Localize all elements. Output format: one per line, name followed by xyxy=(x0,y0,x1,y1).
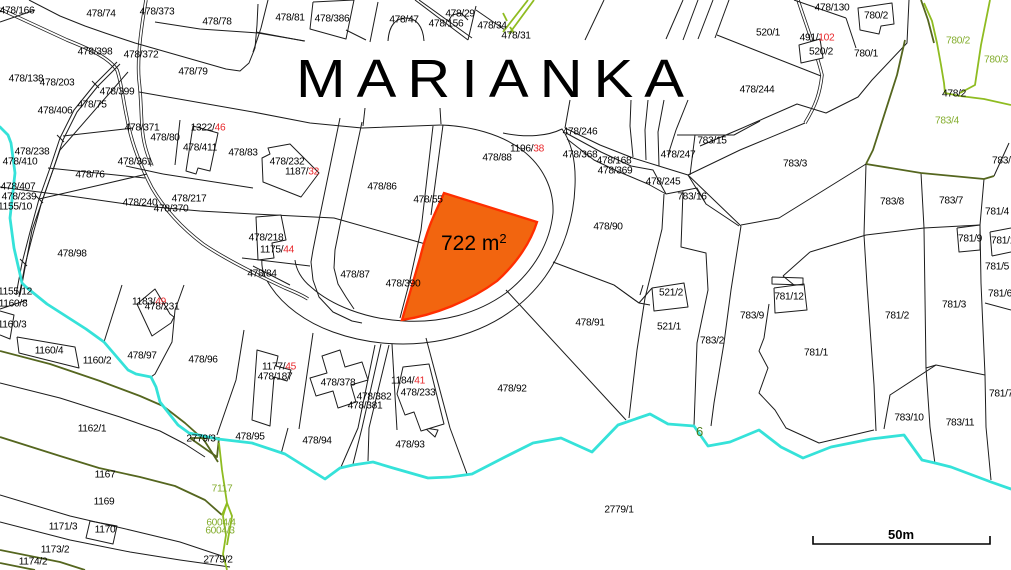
svg-text:478/97: 478/97 xyxy=(127,351,157,362)
svg-text:1160/3: 1160/3 xyxy=(0,320,27,331)
svg-text:520/1: 520/1 xyxy=(756,28,781,39)
svg-text:478/156: 478/156 xyxy=(429,19,464,30)
svg-text:780/1: 780/1 xyxy=(854,49,879,60)
svg-text:478/78: 478/78 xyxy=(202,17,232,28)
svg-text:478/398: 478/398 xyxy=(78,47,113,58)
svg-text:478/93: 478/93 xyxy=(395,440,425,451)
svg-text:478/75: 478/75 xyxy=(77,100,107,111)
svg-text:50m: 50m xyxy=(888,527,914,542)
svg-text:478/91: 478/91 xyxy=(575,318,605,329)
svg-text:783/2: 783/2 xyxy=(700,336,725,347)
svg-text:478/96: 478/96 xyxy=(188,355,218,366)
svg-text:521/1: 521/1 xyxy=(657,322,682,333)
svg-text:478/2: 478/2 xyxy=(942,89,967,100)
svg-text:1174/2: 1174/2 xyxy=(19,557,48,568)
svg-text:781/7: 781/7 xyxy=(989,389,1011,400)
svg-text:478/90: 478/90 xyxy=(593,222,623,233)
svg-text:1162/1: 1162/1 xyxy=(78,424,107,435)
svg-text:1167: 1167 xyxy=(95,470,116,481)
svg-text:781/9: 781/9 xyxy=(958,234,983,245)
svg-text:1169: 1169 xyxy=(94,497,115,508)
svg-text:1196/38: 1196/38 xyxy=(510,144,545,155)
svg-text:478/368: 478/368 xyxy=(563,150,598,161)
svg-text:781/6: 781/6 xyxy=(988,289,1011,300)
svg-text:478/87: 478/87 xyxy=(340,270,370,281)
svg-text:783/10: 783/10 xyxy=(894,413,924,424)
svg-text:781/4: 781/4 xyxy=(985,207,1010,218)
svg-text:1173/2: 1173/2 xyxy=(41,545,70,556)
svg-text:520/2: 520/2 xyxy=(809,47,834,58)
svg-text:478/369: 478/369 xyxy=(598,166,633,177)
svg-text:783/16: 783/16 xyxy=(677,192,707,203)
svg-text:478/83: 478/83 xyxy=(228,148,258,159)
svg-text:783/11: 783/11 xyxy=(946,418,975,429)
svg-text:6004/3: 6004/3 xyxy=(205,526,235,537)
svg-text:781/1: 781/1 xyxy=(991,236,1011,247)
svg-text:478/203: 478/203 xyxy=(40,78,75,89)
svg-text:783/3: 783/3 xyxy=(783,159,808,170)
svg-text:780/2: 780/2 xyxy=(946,36,971,47)
svg-text:491/102: 491/102 xyxy=(800,33,835,44)
svg-text:478/231: 478/231 xyxy=(145,302,180,313)
svg-text:478/55: 478/55 xyxy=(413,195,443,206)
svg-text:722 m2: 722 m2 xyxy=(441,231,507,255)
svg-text:478/187: 478/187 xyxy=(258,372,293,383)
svg-text:478/80: 478/80 xyxy=(150,133,180,144)
svg-text:2779/3: 2779/3 xyxy=(186,434,216,445)
svg-text:6: 6 xyxy=(696,424,703,439)
svg-text:780/2: 780/2 xyxy=(864,11,889,22)
svg-text:478/233: 478/233 xyxy=(401,388,436,399)
svg-text:MARIANKA: MARIANKA xyxy=(296,49,695,109)
svg-text:478/31: 478/31 xyxy=(501,31,531,42)
svg-text:478/86: 478/86 xyxy=(367,182,397,193)
svg-text:478/76: 478/76 xyxy=(75,170,105,181)
svg-text:781/3: 781/3 xyxy=(942,300,967,311)
svg-text:1155/10: 1155/10 xyxy=(0,202,33,213)
svg-text:1160/8: 1160/8 xyxy=(0,299,28,310)
svg-text:478/378: 478/378 xyxy=(321,378,356,389)
svg-text:781/12: 781/12 xyxy=(774,292,804,303)
svg-text:478/411: 478/411 xyxy=(183,143,218,154)
svg-text:1160/4: 1160/4 xyxy=(35,346,64,357)
svg-text:783/15: 783/15 xyxy=(697,136,727,147)
svg-text:478/390: 478/390 xyxy=(386,279,421,290)
svg-text:478/47: 478/47 xyxy=(389,15,419,26)
svg-text:781/5: 781/5 xyxy=(985,262,1010,273)
svg-text:478/244: 478/244 xyxy=(740,85,775,96)
svg-text:1184/41: 1184/41 xyxy=(391,376,426,387)
svg-text:780/3: 780/3 xyxy=(984,55,1009,66)
svg-text:478/381: 478/381 xyxy=(348,401,383,412)
svg-text:478/74: 478/74 xyxy=(86,9,116,20)
svg-text:478/372: 478/372 xyxy=(124,50,159,61)
svg-text:478/245: 478/245 xyxy=(646,177,681,188)
svg-text:478/218: 478/218 xyxy=(249,233,284,244)
svg-text:783/9: 783/9 xyxy=(740,311,765,322)
svg-text:1160/2: 1160/2 xyxy=(83,356,112,367)
svg-text:478/98: 478/98 xyxy=(57,249,87,260)
svg-text:478/130: 478/130 xyxy=(815,3,850,14)
svg-text:478/386: 478/386 xyxy=(315,14,350,25)
svg-text:478/92: 478/92 xyxy=(497,384,527,395)
svg-text:478/95: 478/95 xyxy=(235,432,265,443)
svg-text:478/94: 478/94 xyxy=(302,436,332,447)
svg-text:478/247: 478/247 xyxy=(661,150,696,161)
svg-text:478/166: 478/166 xyxy=(0,6,35,17)
svg-text:1175/44: 1175/44 xyxy=(260,245,295,256)
svg-text:478/88: 478/88 xyxy=(482,153,512,164)
svg-text:783/8: 783/8 xyxy=(880,197,905,208)
svg-text:1187/32: 1187/32 xyxy=(285,167,320,178)
svg-text:783/7: 783/7 xyxy=(939,196,964,207)
svg-text:478/246: 478/246 xyxy=(563,127,598,138)
svg-text:2779/2: 2779/2 xyxy=(203,555,233,566)
svg-text:478/406: 478/406 xyxy=(38,106,73,117)
svg-text:781/1: 781/1 xyxy=(804,348,829,359)
svg-text:478/81: 478/81 xyxy=(275,13,305,24)
svg-text:1322/46: 1322/46 xyxy=(191,123,226,134)
svg-text:783/5: 783/5 xyxy=(992,156,1011,167)
svg-text:1171/3: 1171/3 xyxy=(49,522,78,533)
svg-text:2779/1: 2779/1 xyxy=(604,505,634,516)
svg-text:783/4: 783/4 xyxy=(935,116,960,127)
svg-text:478/399: 478/399 xyxy=(100,87,135,98)
svg-text:781/2: 781/2 xyxy=(885,311,910,322)
svg-text:478/410: 478/410 xyxy=(3,157,38,168)
svg-text:478/361: 478/361 xyxy=(118,157,153,168)
svg-text:478/373: 478/373 xyxy=(140,7,175,18)
svg-text:478/79: 478/79 xyxy=(178,67,208,78)
svg-text:478/84: 478/84 xyxy=(247,269,277,280)
svg-text:478/370: 478/370 xyxy=(154,204,189,215)
svg-text:521/2: 521/2 xyxy=(659,288,684,299)
svg-text:1155/12: 1155/12 xyxy=(0,287,33,298)
svg-text:1170: 1170 xyxy=(95,525,116,536)
svg-text:7117: 7117 xyxy=(212,484,233,495)
